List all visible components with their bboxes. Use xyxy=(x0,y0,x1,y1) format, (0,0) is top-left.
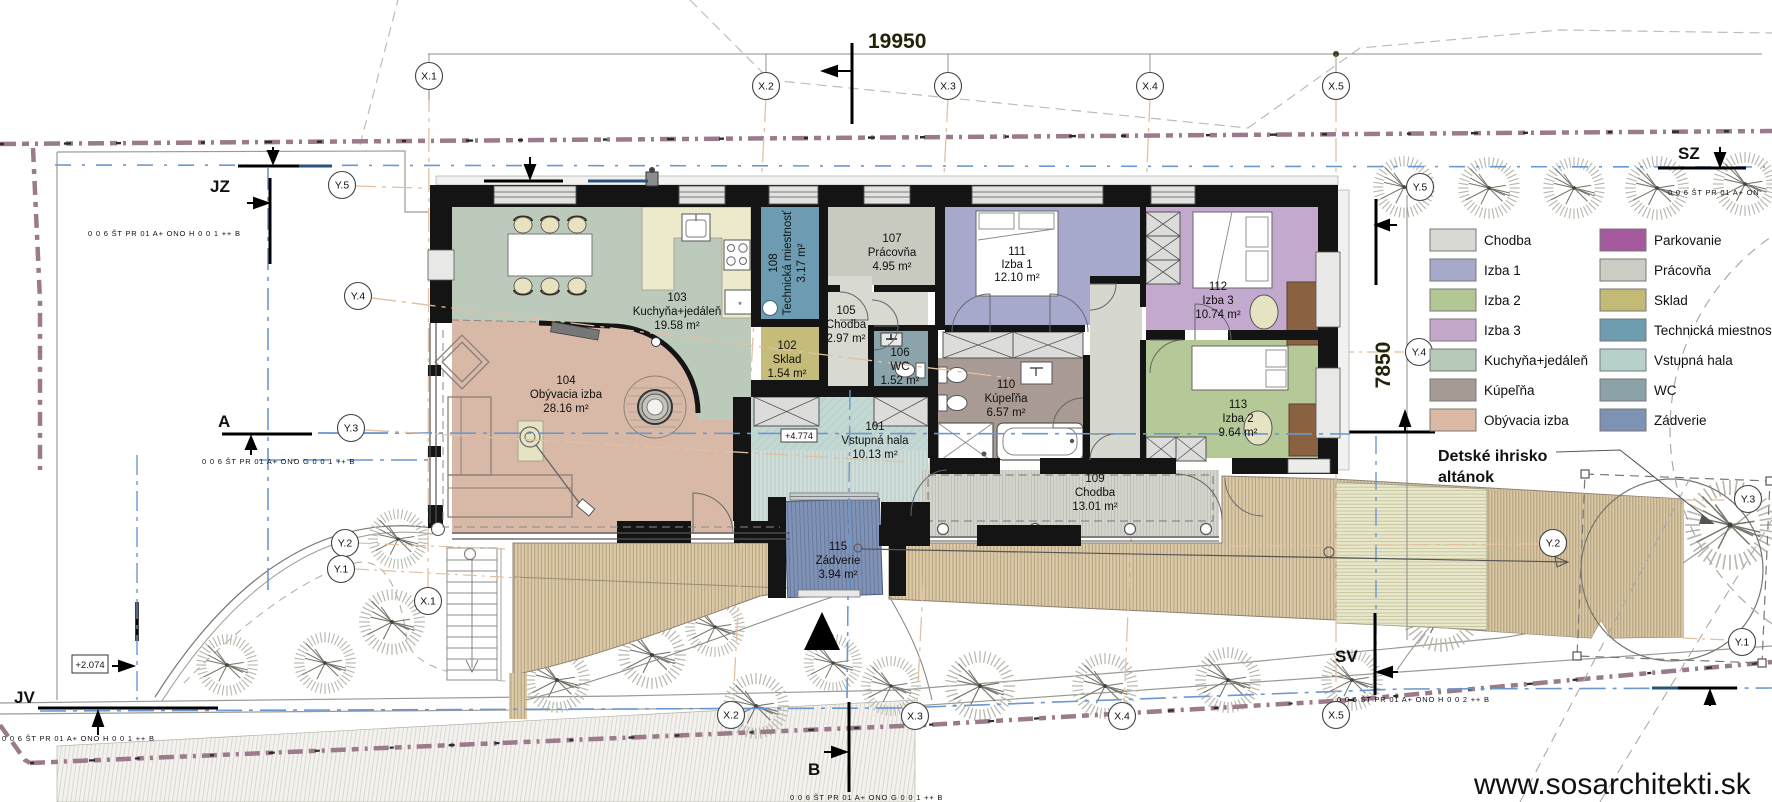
svg-text:Zádverie: Zádverie xyxy=(816,555,861,567)
svg-text:Kuchyňa+jedáleň: Kuchyňa+jedáleň xyxy=(1484,353,1588,368)
svg-text:SZ: SZ xyxy=(1678,144,1700,163)
svg-text:102: 102 xyxy=(777,340,796,352)
svg-text:www.sosarchitekti.sk: www.sosarchitekti.sk xyxy=(1473,768,1752,801)
svg-text:7850: 7850 xyxy=(1372,342,1395,389)
svg-text:Izba 1: Izba 1 xyxy=(1484,263,1521,278)
svg-text:Sklad: Sklad xyxy=(773,354,802,366)
svg-text:0 0 6 ŠT PR 01 A+ ONO H 0 0 1: 0 0 6 ŠT PR 01 A+ ONO H 0 0 1 ++ B xyxy=(2,734,155,743)
svg-text:X.3: X.3 xyxy=(907,711,923,723)
svg-text:Obývacia izba: Obývacia izba xyxy=(530,389,603,401)
svg-text:Izba 3: Izba 3 xyxy=(1202,295,1233,307)
svg-text:104: 104 xyxy=(556,375,576,387)
svg-text:JV: JV xyxy=(14,688,35,707)
svg-text:109: 109 xyxy=(1085,473,1104,485)
svg-text:altánok: altánok xyxy=(1438,469,1494,486)
svg-text:Y.3: Y.3 xyxy=(344,423,359,435)
svg-text:3.17 m²: 3.17 m² xyxy=(796,243,808,282)
svg-text:Kuchyňa+jedáleň: Kuchyňa+jedáleň xyxy=(633,306,722,318)
svg-text:Technická miestnosť: Technická miestnosť xyxy=(1654,323,1772,338)
svg-text:0 0 6 ŠT PR 01 A+ ONO H 0 0 2: 0 0 6 ŠT PR 01 A+ ONO H 0 0 2 ++ B xyxy=(1337,695,1490,704)
svg-text:Izba 1: Izba 1 xyxy=(1001,259,1032,271)
svg-text:106: 106 xyxy=(890,347,909,359)
svg-text:Chodba: Chodba xyxy=(1075,487,1116,499)
svg-text:1.52 m²: 1.52 m² xyxy=(881,375,920,387)
svg-text:107: 107 xyxy=(882,233,901,245)
svg-text:13.01 m²: 13.01 m² xyxy=(1072,501,1118,513)
svg-text:Izba 2: Izba 2 xyxy=(1222,413,1253,425)
svg-text:10.13 m²: 10.13 m² xyxy=(852,449,898,461)
svg-text:1.54 m²: 1.54 m² xyxy=(768,368,807,380)
svg-text:110: 110 xyxy=(997,379,1015,391)
svg-text:X.2: X.2 xyxy=(758,81,774,93)
svg-text:Y.3: Y.3 xyxy=(1741,494,1756,506)
svg-text:X.3: X.3 xyxy=(940,81,956,93)
svg-text:Y.2: Y.2 xyxy=(338,538,353,550)
svg-text:105: 105 xyxy=(836,305,855,317)
svg-text:0 0 6 ŠT PR 01 A+ ON: 0 0 6 ŠT PR 01 A+ ON xyxy=(1668,188,1760,197)
svg-text:Izba 2: Izba 2 xyxy=(1484,293,1521,308)
svg-text:X.2: X.2 xyxy=(723,710,739,722)
svg-text:A: A xyxy=(218,412,230,431)
svg-text:0 0 6 ŠT PR 01 A+ ONO H 0 0 1: 0 0 6 ŠT PR 01 A+ ONO H 0 0 1 ++ B xyxy=(88,229,241,238)
svg-text:4.95 m²: 4.95 m² xyxy=(873,261,912,273)
svg-text:Parkovanie: Parkovanie xyxy=(1654,233,1722,248)
svg-text:0 0 6 ŠT PR 01 A+ ONO G 0 0 1: 0 0 6 ŠT PR 01 A+ ONO G 0 0 1 ++ B xyxy=(790,793,943,802)
svg-text:Y.2: Y.2 xyxy=(1546,538,1561,550)
svg-text:Y.4: Y.4 xyxy=(1412,347,1427,359)
svg-text:112: 112 xyxy=(1209,281,1227,293)
svg-text:*: * xyxy=(738,300,742,310)
svg-text:Detské ihrisko: Detské ihrisko xyxy=(1438,448,1548,465)
svg-text:X.4: X.4 xyxy=(1142,81,1158,93)
svg-text:X.1: X.1 xyxy=(421,71,437,83)
svg-text:Y.5: Y.5 xyxy=(335,180,350,192)
svg-text:115: 115 xyxy=(829,541,847,553)
svg-text:X.5: X.5 xyxy=(1328,710,1344,722)
svg-text:Sklad: Sklad xyxy=(1654,293,1688,308)
svg-text:JZ: JZ xyxy=(210,177,230,196)
svg-text:X.1: X.1 xyxy=(420,596,436,608)
svg-text:Vstupná hala: Vstupná hala xyxy=(841,435,909,447)
svg-text:Kúpeľňa: Kúpeľňa xyxy=(984,393,1028,405)
svg-text:19.58 m²: 19.58 m² xyxy=(654,320,700,332)
svg-text:101: 101 xyxy=(865,421,884,433)
svg-text:Chodba: Chodba xyxy=(826,319,867,331)
svg-text:B: B xyxy=(808,760,820,779)
svg-text:Prácovňa: Prácovňa xyxy=(868,247,917,259)
svg-text:Vstupná hala: Vstupná hala xyxy=(1654,353,1733,368)
svg-text:0 0 6 ŠT PR 01 A+ ONO G 0 0 1: 0 0 6 ŠT PR 01 A+ ONO G 0 0 1 ++ B xyxy=(202,457,355,466)
svg-text:2.97 m²: 2.97 m² xyxy=(827,333,866,345)
svg-text:108: 108 xyxy=(768,253,780,272)
svg-text:Y.5: Y.5 xyxy=(1413,182,1428,194)
svg-text:111: 111 xyxy=(1008,246,1025,258)
svg-text:Technická miestnosť: Technická miestnosť xyxy=(782,210,794,315)
svg-text:3.94 m²: 3.94 m² xyxy=(819,569,858,581)
svg-text:Kúpeľňa: Kúpeľňa xyxy=(1484,383,1535,398)
svg-text:SV: SV xyxy=(1335,647,1358,666)
svg-text:WC: WC xyxy=(1654,383,1677,398)
svg-text:WC: WC xyxy=(890,361,909,373)
svg-text:Zádverie: Zádverie xyxy=(1654,413,1707,428)
svg-text:Obývacia izba: Obývacia izba xyxy=(1484,413,1569,428)
svg-text:28.16 m²: 28.16 m² xyxy=(543,403,589,415)
svg-text:+2.074: +2.074 xyxy=(75,660,104,671)
svg-text:Chodba: Chodba xyxy=(1484,233,1532,248)
svg-text:Prácovňa: Prácovňa xyxy=(1654,263,1712,278)
svg-text:19950: 19950 xyxy=(868,30,926,53)
svg-text:X.4: X.4 xyxy=(1114,711,1130,723)
svg-text:Y.1: Y.1 xyxy=(1735,637,1750,649)
svg-text:10.74 m²: 10.74 m² xyxy=(1195,309,1241,321)
svg-text:12.10 m²: 12.10 m² xyxy=(994,272,1040,284)
svg-text:113: 113 xyxy=(1229,399,1247,411)
svg-text:Y.1: Y.1 xyxy=(334,564,349,576)
svg-text:9.64 m²: 9.64 m² xyxy=(1219,427,1258,439)
svg-text:Izba 3: Izba 3 xyxy=(1484,323,1521,338)
svg-text:Y.4: Y.4 xyxy=(351,291,366,303)
svg-text:103: 103 xyxy=(667,292,686,304)
svg-text:X.5: X.5 xyxy=(1328,81,1344,93)
svg-text:+4.774: +4.774 xyxy=(785,431,813,441)
svg-text:6.57 m²: 6.57 m² xyxy=(987,407,1026,419)
